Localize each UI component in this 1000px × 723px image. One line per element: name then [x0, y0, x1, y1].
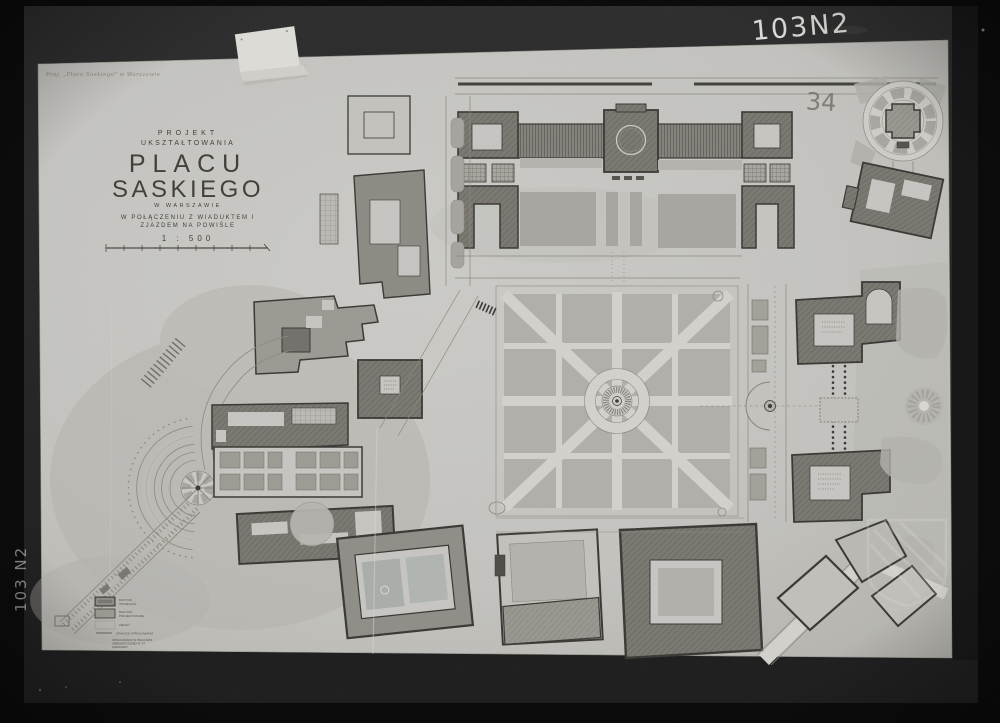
plan-photo-canvas: PROJEKT UKSZTAŁTOWANIA PLACU SASKIEGO W … [0, 0, 1000, 723]
photo-vignette [0, 0, 1000, 723]
photograph-of-framed-plan: PROJEKT UKSZTAŁTOWANIA PLACU SASKIEGO W … [0, 0, 1000, 723]
